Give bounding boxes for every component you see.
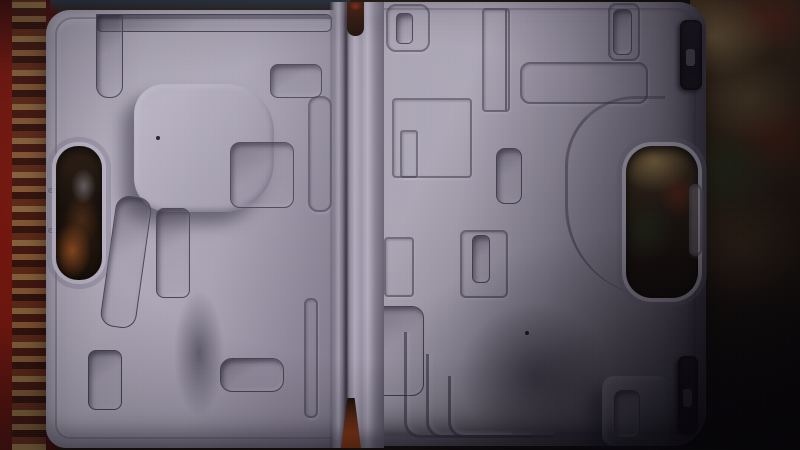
molded-recess-nest-slot <box>472 235 490 283</box>
drill-grip-recess <box>99 194 153 330</box>
latch-slit-highlight <box>683 389 692 408</box>
molded-recess-topleft-slot <box>396 13 413 44</box>
right-handle-cutout <box>626 146 698 298</box>
molded-shadow-band <box>174 290 224 416</box>
case-right-shell <box>360 2 706 446</box>
molded-recess-bottom-pill <box>220 358 284 392</box>
top-latch <box>680 20 702 90</box>
hinge-gap-top <box>347 2 364 36</box>
molded-line-center <box>505 10 507 110</box>
carpet-ornament-band <box>12 0 46 450</box>
hinge-gap-bottom <box>341 398 361 448</box>
latch-slit-highlight <box>686 49 696 66</box>
speck-left-shell <box>156 136 160 140</box>
handle-grip-pill <box>689 184 702 256</box>
speck-right-shell <box>525 331 529 335</box>
molded-ridge-left-steps <box>384 237 414 297</box>
molded-ridge-right-bar <box>304 298 318 418</box>
bottom-latch <box>678 356 698 434</box>
molded-recess-notch <box>270 64 322 98</box>
case-left-shell <box>46 10 352 448</box>
molded-recess-topright-slot <box>613 9 632 55</box>
molded-recess-bottom-square <box>88 350 122 410</box>
molded-ridge-mid-step <box>400 130 418 178</box>
carpet-right-pile <box>690 0 800 450</box>
molded-recess-top-vertical <box>96 14 123 98</box>
molded-recess-grip-bar <box>156 208 190 298</box>
photo-open-tool-case-scene <box>0 0 800 450</box>
soft-cast-shadow-center <box>460 302 610 448</box>
molded-ridge-vertical-pill <box>308 96 332 212</box>
molded-recess-mid-slot <box>496 148 522 204</box>
case-hinge <box>330 2 384 448</box>
molded-recess-top-channel <box>96 14 332 32</box>
molded-recess-bottom-slot <box>614 390 640 438</box>
tool-case <box>46 2 706 448</box>
molded-recess-stepped-square <box>230 142 294 208</box>
left-handle-cutout <box>56 146 102 280</box>
